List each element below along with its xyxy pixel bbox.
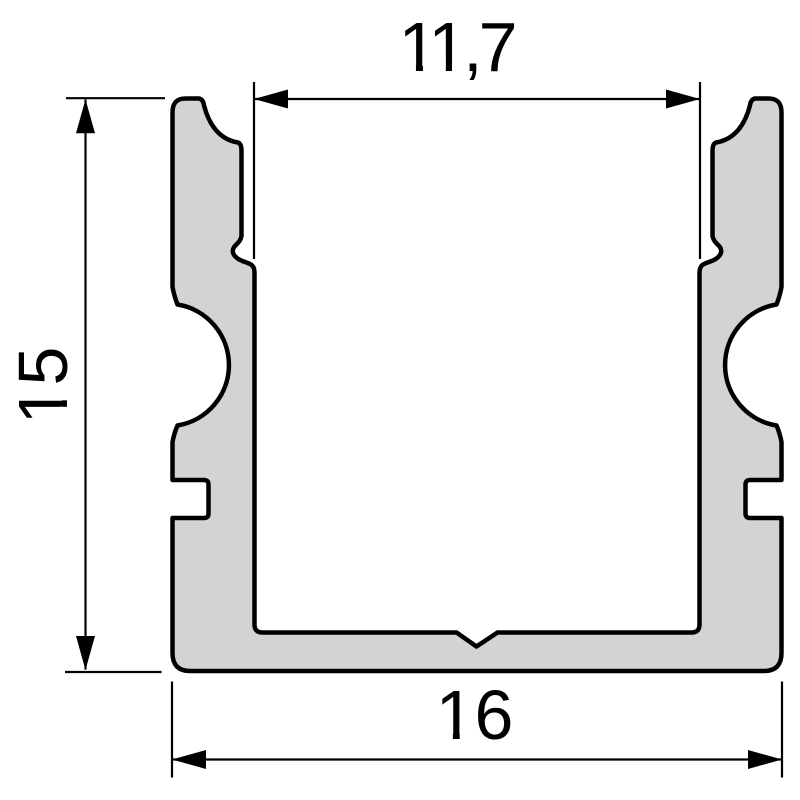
svg-text:11,7: 11,7 (398, 8, 514, 86)
svg-text:15: 15 (4, 347, 82, 425)
svg-text:16: 16 (436, 676, 514, 754)
